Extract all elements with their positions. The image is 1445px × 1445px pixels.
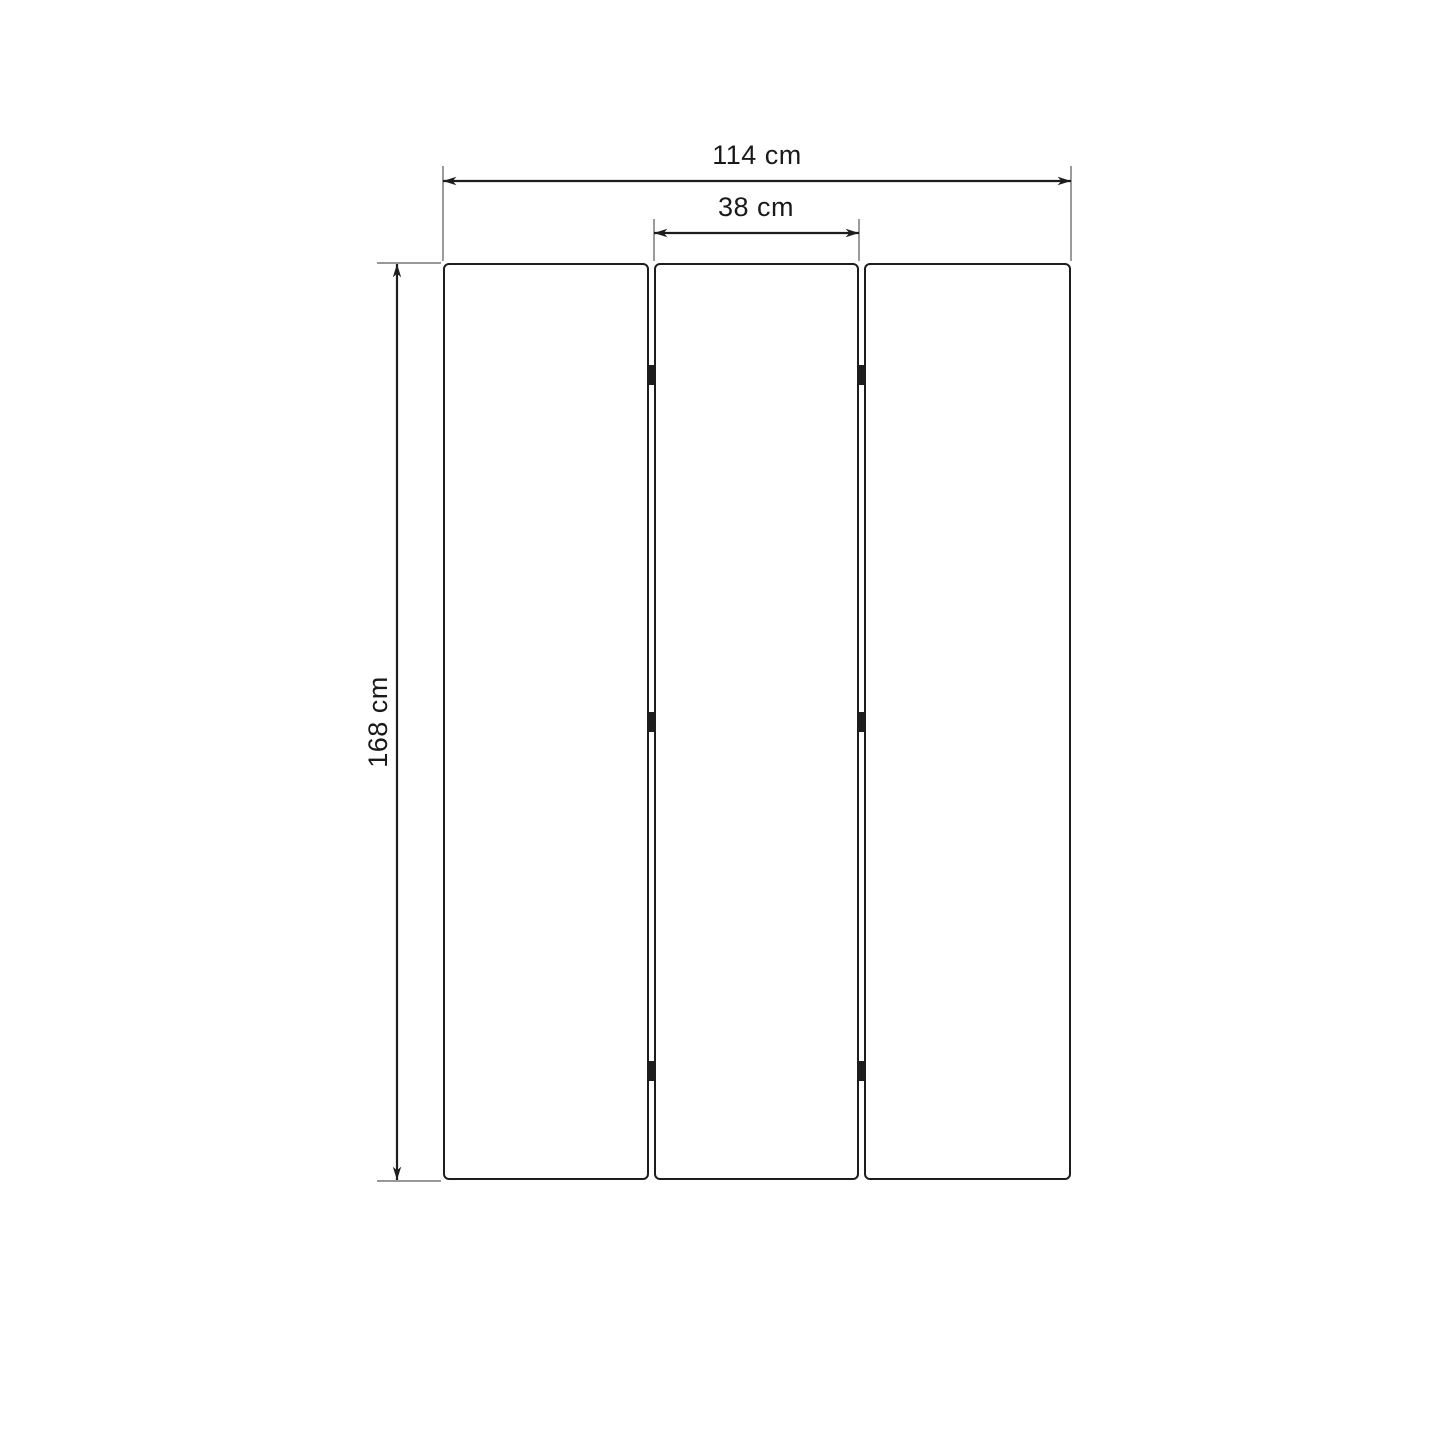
- height-label: 168 cm: [363, 622, 393, 822]
- hinge-icon: [647, 712, 656, 732]
- panel-right: [864, 263, 1071, 1180]
- panel-middle: [654, 263, 859, 1180]
- dimension-diagram: 114 cm 38 cm 168 cm: [0, 0, 1445, 1445]
- hinge-icon: [857, 712, 866, 732]
- hinge-icon: [857, 365, 866, 385]
- panel-width-label: 38 cm: [606, 192, 906, 222]
- hinge-icon: [647, 365, 656, 385]
- hinge-icon: [647, 1061, 656, 1081]
- hinge-icon: [857, 1061, 866, 1081]
- total-width-label: 114 cm: [607, 140, 907, 170]
- panel-left: [443, 263, 649, 1180]
